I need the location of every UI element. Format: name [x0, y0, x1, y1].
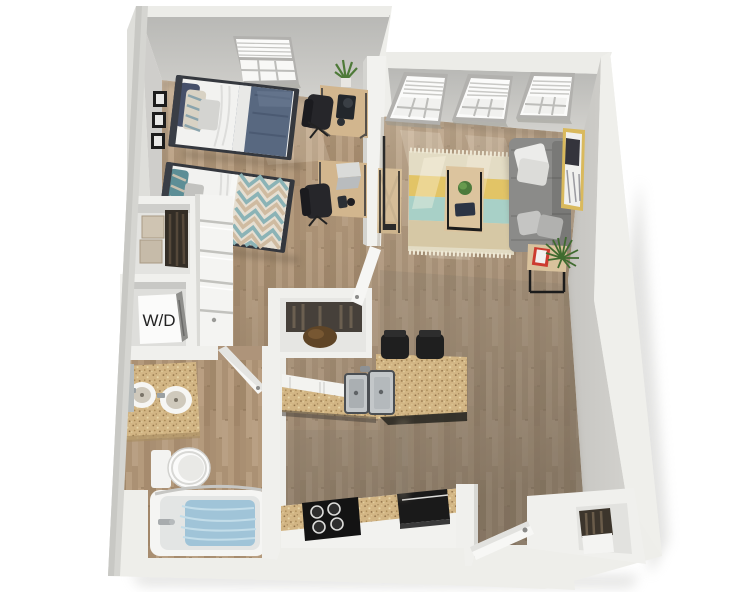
svg-text:W/D: W/D	[142, 311, 175, 330]
